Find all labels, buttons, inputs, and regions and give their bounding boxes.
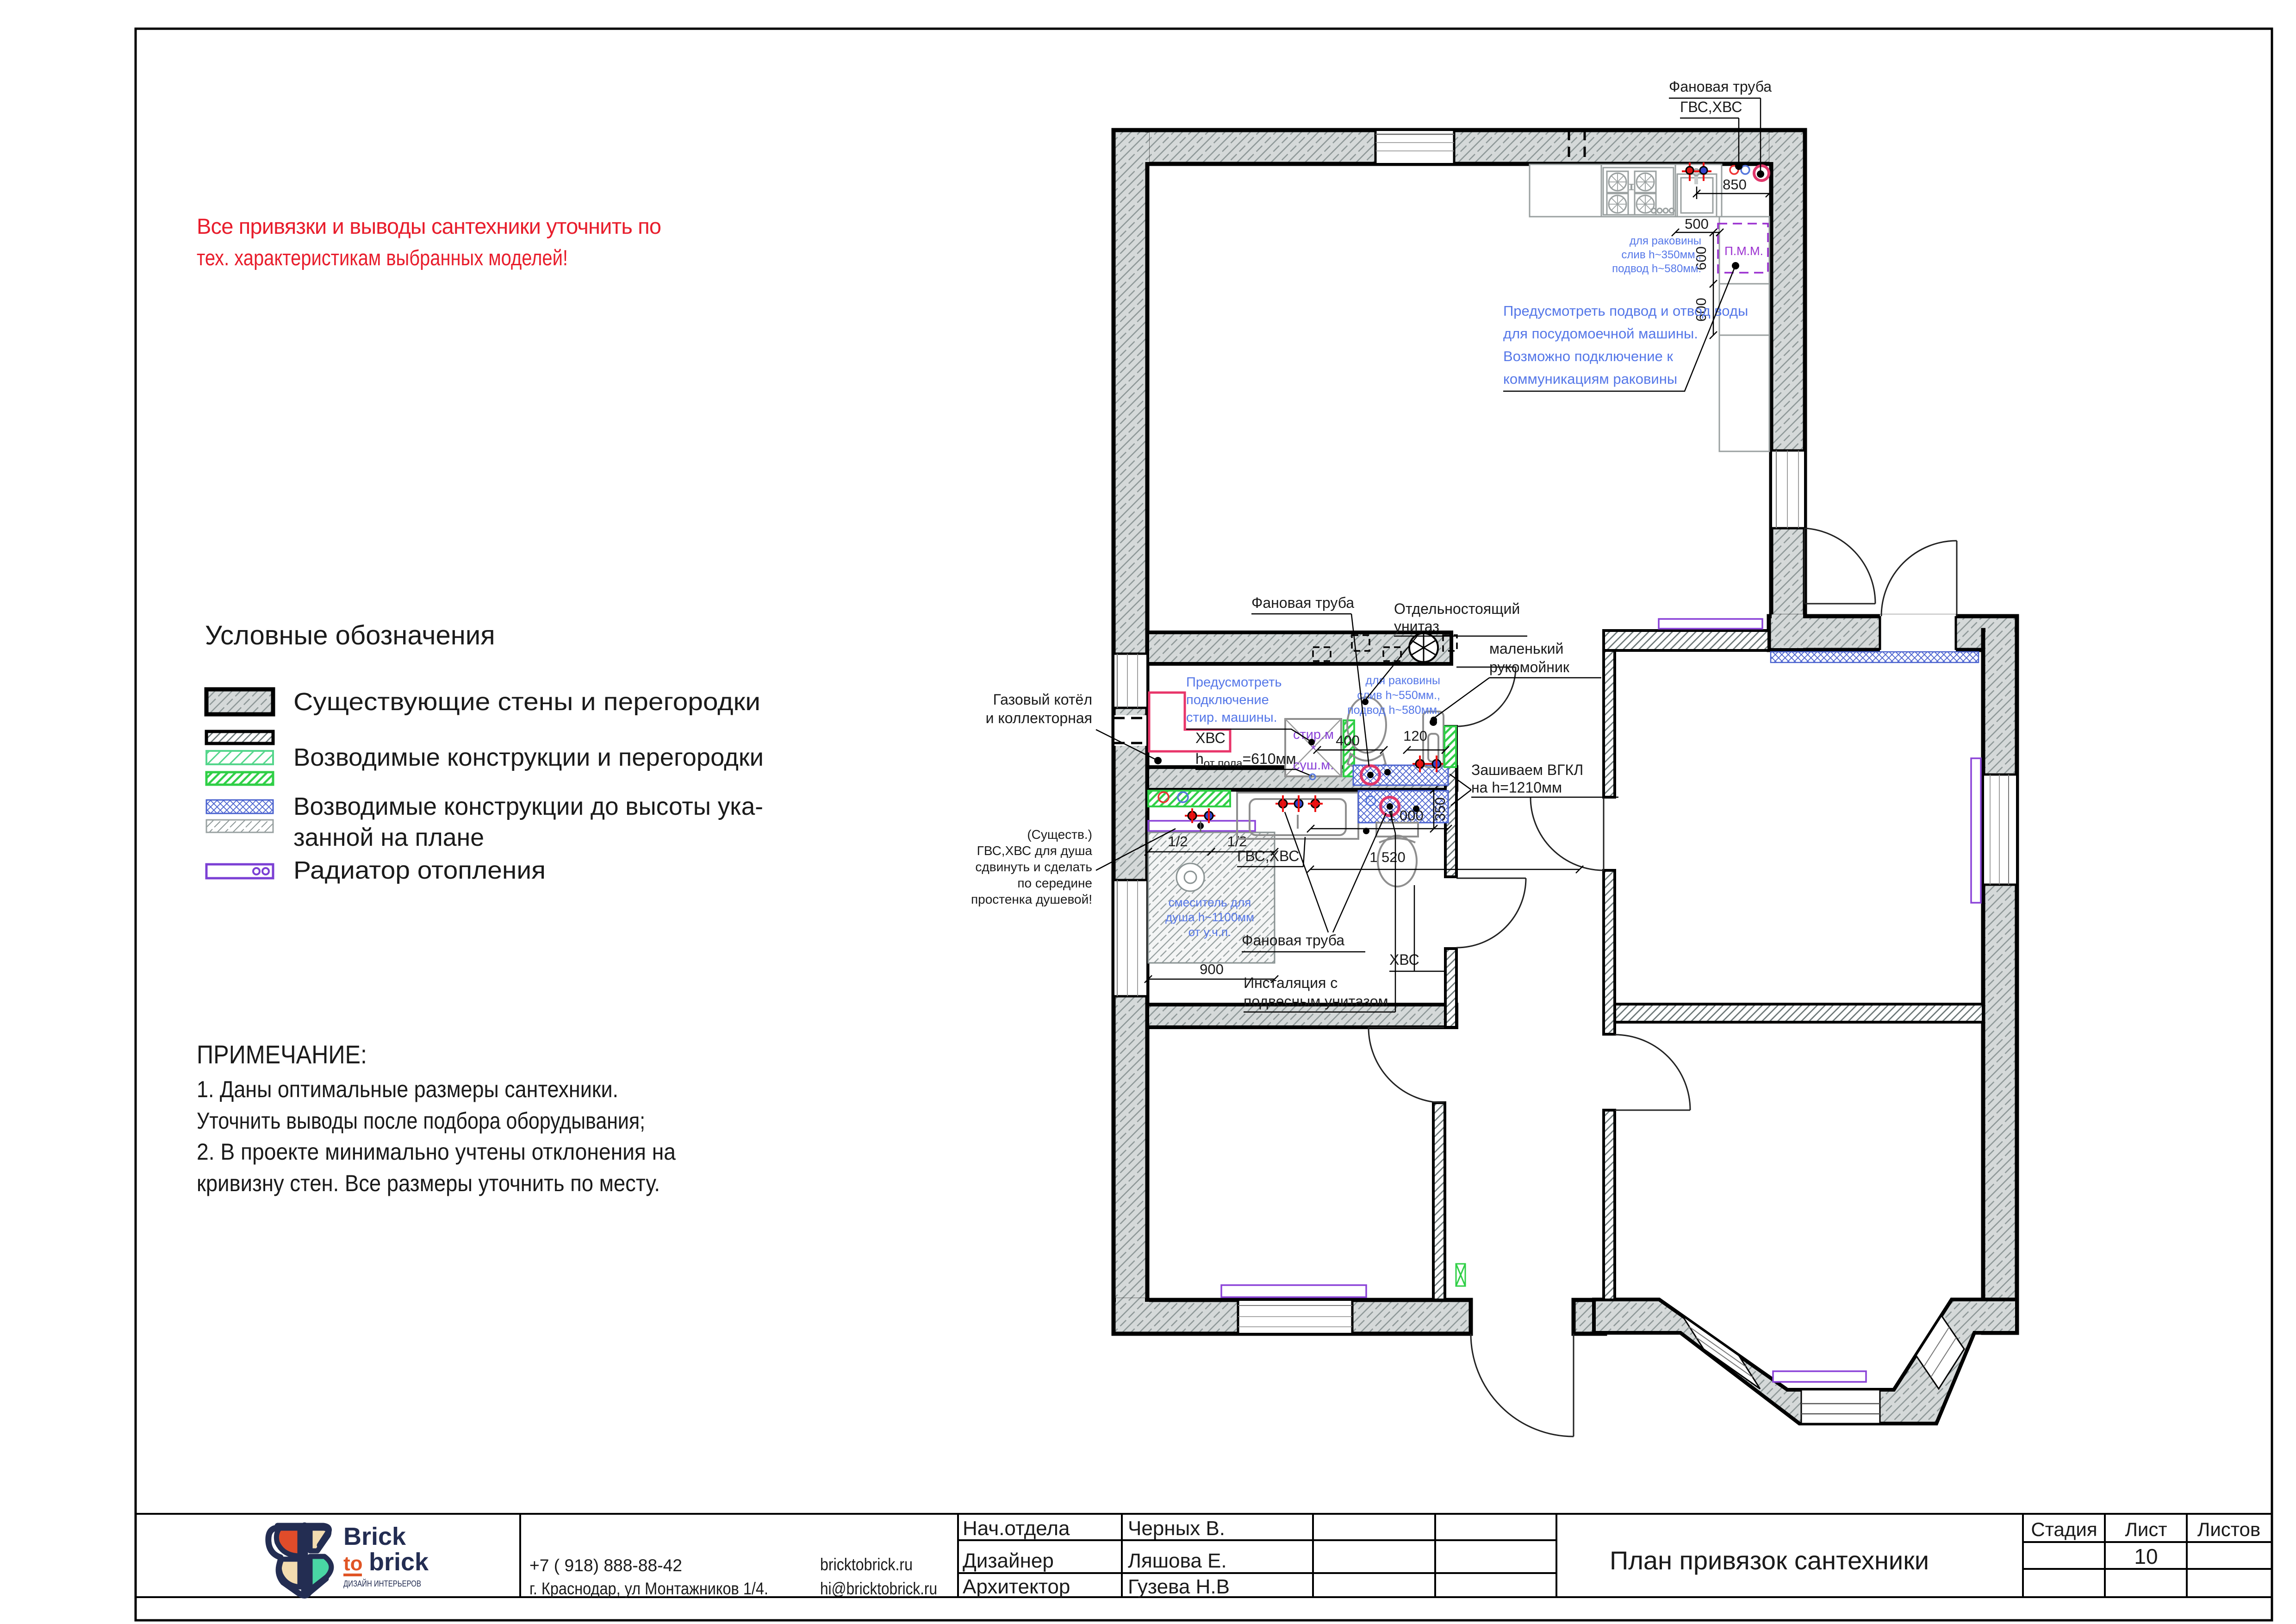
svg-text:маленький: маленький	[1489, 640, 1563, 657]
svg-text:Возводимые конструкции до высо: Возводимые конструкции до высоты ука-	[293, 793, 763, 820]
svg-text:10: 10	[2134, 1544, 2158, 1568]
svg-text:смеситель для: смеситель для	[1169, 895, 1251, 909]
svg-text:Черных В.: Черных В.	[1128, 1517, 1225, 1540]
svg-text:подвод h~580мм.: подвод h~580мм.	[1347, 704, 1440, 717]
svg-text:Гузева Н.В: Гузева Н.В	[1128, 1575, 1230, 1598]
svg-text:План привязок сантехники: План привязок сантехники	[1610, 1546, 1929, 1575]
svg-text:ГВС,ХВС: ГВС,ХВС	[1237, 848, 1299, 864]
svg-text:Листов: Листов	[2197, 1518, 2260, 1540]
svg-text:унитаз: унитаз	[1394, 618, 1439, 635]
svg-text:1/2: 1/2	[1168, 833, 1188, 849]
svg-text:слив h~350мм.,: слив h~350мм.,	[1621, 249, 1701, 261]
svg-text:500: 500	[1685, 216, 1709, 232]
svg-text:ДИЗАЙН ИНТЕРЬЕРОВ: ДИЗАЙН ИНТЕРЬЕРОВ	[343, 1579, 421, 1588]
svg-text:для посудомоечной машины.: для посудомоечной машины.	[1503, 325, 1698, 342]
svg-text:900: 900	[1200, 961, 1224, 977]
svg-text:ГВС,ХВС для душа: ГВС,ХВС для душа	[977, 843, 1093, 858]
svg-text:стир. машины.: стир. машины.	[1186, 710, 1277, 725]
svg-text:hi@bricktobrick.ru: hi@bricktobrick.ru	[820, 1579, 937, 1598]
svg-text:П.М.М.: П.М.М.	[1724, 244, 1763, 258]
svg-text:120: 120	[1403, 728, 1427, 744]
svg-text:занной на плане: занной на плане	[293, 824, 484, 851]
svg-text:от у.ч.п.: от у.ч.п.	[1188, 925, 1232, 939]
svg-text:подключение: подключение	[1186, 693, 1269, 707]
svg-text:Ляшова Е.: Ляшова Е.	[1128, 1549, 1227, 1572]
svg-text:Brick: Brick	[343, 1523, 406, 1550]
svg-text:Дизайнер: Дизайнер	[963, 1549, 1054, 1572]
svg-text:Газовый котёл: Газовый котёл	[993, 691, 1092, 708]
svg-text:1. Даны оптимальные размеры са: 1. Даны оптимальные размеры сантехники.	[197, 1076, 618, 1102]
svg-text:2. В проекте минимально учтены: 2. В проекте минимально учтены отклонени…	[197, 1139, 676, 1165]
svg-text:(Существ.): (Существ.)	[1027, 827, 1092, 842]
svg-text:по середине: по середине	[1017, 876, 1092, 890]
svg-text:ХВС: ХВС	[1195, 730, 1226, 746]
svg-text:+7 ( 918) 888-88-42: +7 ( 918) 888-88-42	[529, 1556, 682, 1575]
svg-text:ПРИМЕЧАНИЕ:: ПРИМЕЧАНИЕ:	[197, 1040, 367, 1069]
svg-text:Возможно подключение к: Возможно подключение к	[1503, 348, 1673, 364]
svg-text:Условные обозначения: Условные обозначения	[205, 620, 495, 650]
svg-text:to: to	[343, 1552, 363, 1575]
svg-text:Фановая труба: Фановая труба	[1251, 594, 1354, 611]
svg-text:тех. характеристикам выбранных: тех. характеристикам выбранных моделей!	[197, 245, 568, 270]
svg-text:Нач.отдела: Нач.отдела	[963, 1517, 1070, 1540]
svg-text:Возводимые конструкции и перег: Возводимые конструкции и перегородки	[293, 743, 764, 771]
svg-text:рукомойник: рукомойник	[1489, 659, 1570, 675]
svg-text:Архитектор: Архитектор	[963, 1575, 1070, 1598]
svg-text:на h=1210мм: на h=1210мм	[1471, 779, 1562, 796]
svg-text:и коллекторная: и коллекторная	[986, 710, 1092, 726]
svg-text:Уточнить выводы после подбора: Уточнить выводы после подбора оборудыван…	[197, 1108, 645, 1134]
svg-text:1 520: 1 520	[1369, 849, 1406, 865]
svg-text:brick: brick	[369, 1548, 429, 1576]
svg-text:Фановая труба: Фановая труба	[1669, 78, 1772, 95]
svg-text:Зашиваем ВГКЛ: Зашиваем ВГКЛ	[1471, 762, 1583, 778]
svg-text:350: 350	[1432, 797, 1448, 821]
svg-text:коммуникациям раковины: коммуникациям раковины	[1503, 371, 1677, 387]
svg-text:простенка душевой!: простенка душевой!	[971, 892, 1092, 906]
svg-text:Инсталяция с: Инсталяция с	[1244, 974, 1338, 991]
svg-text:кривизну стен. Все размеры уто: кривизну стен. Все размеры уточнить по м…	[197, 1170, 660, 1196]
svg-text:для раковины: для раковины	[1630, 235, 1701, 247]
svg-text:сдвинуть и сделать: сдвинуть и сделать	[975, 860, 1092, 874]
svg-text:Фановая труба: Фановая труба	[1242, 932, 1344, 949]
svg-text:подвесным унитазом: подвесным унитазом	[1244, 993, 1388, 1010]
svg-text:Предусмотреть подвод и отвод в: Предусмотреть подвод и отвод воды	[1503, 303, 1748, 319]
svg-text:ГВС,ХВС: ГВС,ХВС	[1680, 99, 1742, 115]
svg-text:400: 400	[1336, 732, 1360, 749]
svg-text:bricktobrick.ru: bricktobrick.ru	[820, 1555, 913, 1574]
svg-text:Стадия: Стадия	[2031, 1518, 2097, 1540]
svg-text:душа h~1100мм: душа h~1100мм	[1165, 910, 1254, 924]
svg-text:850: 850	[1723, 176, 1747, 193]
svg-text:Существующие стены и перегород: Существующие стены и перегородки	[293, 688, 760, 716]
svg-text:г. Краснодар, ул Монтажников: г. Краснодар, ул Монтажников 1/4.	[529, 1579, 768, 1598]
svg-text:подвод h~580мм.: подвод h~580мм.	[1612, 262, 1701, 275]
svg-text:Предусмотреть: Предусмотреть	[1186, 675, 1282, 690]
svg-text:Отдельностоящий: Отдельностоящий	[1394, 600, 1520, 617]
svg-text:Все привязки и выводы сантехни: Все привязки и выводы сантехники уточнит…	[197, 214, 661, 238]
svg-text:Лист: Лист	[2125, 1518, 2167, 1540]
svg-text:Радиатор отопления: Радиатор отопления	[293, 856, 546, 884]
svg-text:1 000: 1 000	[1388, 807, 1424, 824]
